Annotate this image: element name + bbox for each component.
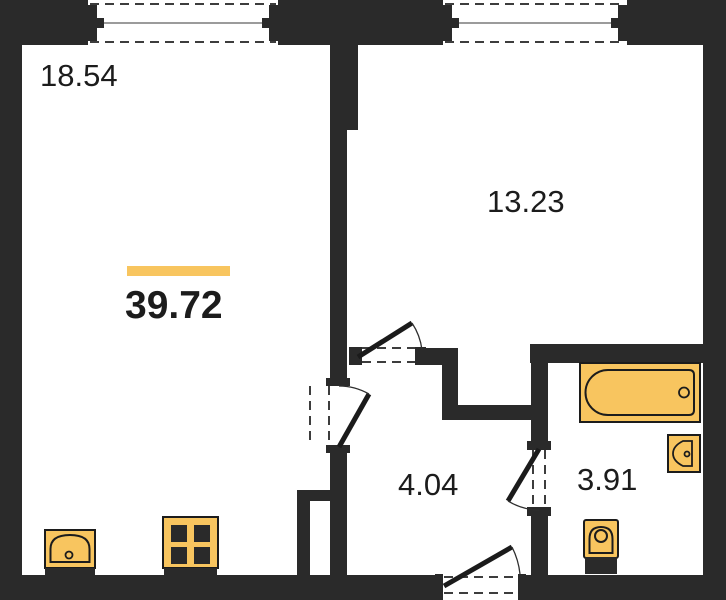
stove-burner <box>194 547 210 564</box>
wall-segment <box>531 516 548 575</box>
toilet-icon <box>584 520 618 574</box>
wall-segment <box>442 405 531 420</box>
wall-segment <box>0 0 22 600</box>
duct-wall <box>297 490 330 501</box>
wall-segment <box>703 0 726 600</box>
window-frame-cap <box>88 5 97 41</box>
window-frame-nub <box>452 18 459 28</box>
door-jamb <box>326 378 350 386</box>
door-bathroom <box>508 449 545 510</box>
window-frame-nub <box>97 18 104 28</box>
duct-wall <box>297 501 310 575</box>
door-swing-arc <box>412 323 422 350</box>
door-jamb <box>435 574 443 597</box>
window-frame-cap <box>443 5 452 41</box>
stove-burner <box>171 525 187 542</box>
door-jamb <box>527 507 551 516</box>
window-frame-cap <box>269 5 278 41</box>
window-frame-nub <box>611 18 618 28</box>
door-leaf <box>358 323 412 357</box>
wall-segment <box>530 344 726 363</box>
kitchen-sink-base <box>45 568 95 575</box>
washbasin-icon <box>668 435 700 472</box>
door-leaf <box>508 449 539 501</box>
window-frame-cap <box>618 5 627 41</box>
wall-segment <box>424 348 458 365</box>
stove-burner <box>194 525 210 542</box>
total-area-accent-bar <box>127 266 230 276</box>
door-leaf <box>339 394 369 447</box>
window-bedroom <box>443 4 627 42</box>
hallway-area-label: 4.04 <box>398 467 458 502</box>
door-living-room <box>310 386 369 447</box>
stove-base <box>164 568 217 575</box>
wall-segment <box>442 365 458 407</box>
stove-icon <box>163 517 218 575</box>
living-room-area-label: 18.54 <box>40 58 118 93</box>
floor-plan-svg: 18.54 13.23 39.72 4.04 3.91 <box>0 0 726 600</box>
bedroom-area-label: 13.23 <box>487 184 565 219</box>
wall-segment <box>0 575 726 600</box>
door-entrance <box>435 547 526 600</box>
window-living-room <box>88 4 278 42</box>
floor-plan: 18.54 13.23 39.72 4.04 3.91 <box>0 0 726 600</box>
stove-burner <box>171 547 187 564</box>
door-jamb <box>518 574 526 597</box>
window-frame-nub <box>262 18 269 28</box>
door-bedroom <box>358 323 422 362</box>
wall-segment <box>0 0 88 45</box>
wall-segment <box>278 0 443 45</box>
door-jamb <box>527 441 551 450</box>
wall-segment <box>330 130 347 378</box>
wall-segment <box>330 453 347 575</box>
door-swing-arc <box>512 547 520 574</box>
kitchen-sink-icon <box>45 530 95 575</box>
wall-segment <box>330 45 358 130</box>
wall-segment <box>531 344 548 441</box>
door-swing-arc <box>339 386 369 394</box>
total-area-label: 39.72 <box>125 284 223 327</box>
wall-segment <box>627 0 726 45</box>
bathroom-area-label: 3.91 <box>577 462 637 497</box>
bathtub-icon <box>580 363 700 422</box>
toilet-tank <box>585 557 617 574</box>
